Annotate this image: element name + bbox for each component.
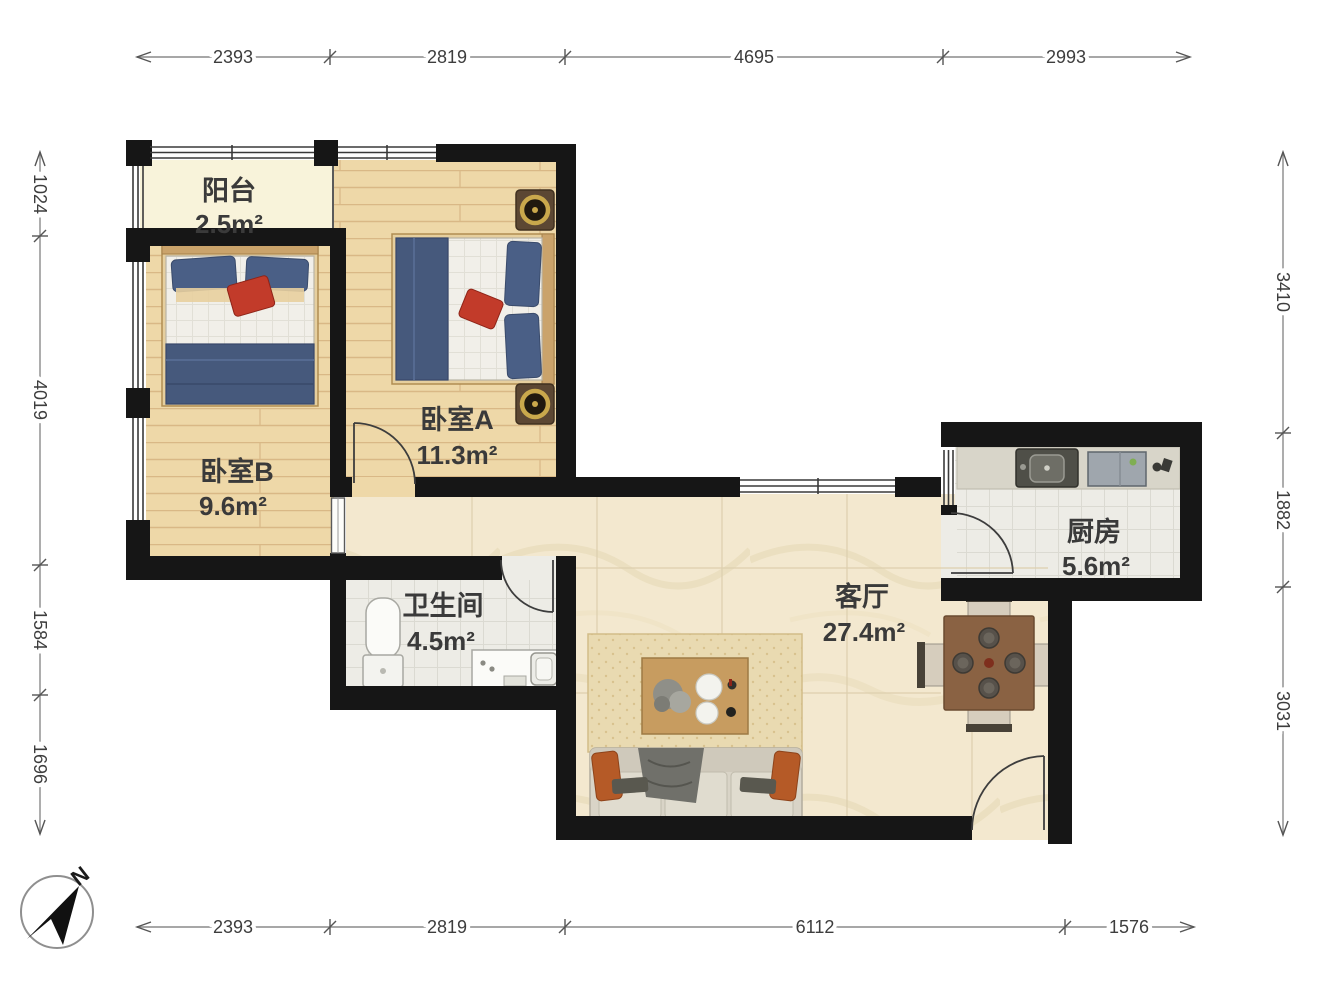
- dim-top-1: 2393: [213, 47, 253, 67]
- living-room-top-window: [740, 478, 895, 494]
- bathroom-label: 卫生间: [403, 591, 484, 621]
- bedroom-b-left-window-upper: [133, 262, 143, 388]
- dim-right-3: 3031: [1273, 691, 1293, 731]
- dim-right-1: 3410: [1273, 272, 1293, 312]
- balcony-label: 阳台: [202, 175, 256, 206]
- coffee-table: [642, 658, 748, 734]
- dim-left-2: 4019: [30, 380, 50, 420]
- dim-left-1: 1024: [30, 174, 50, 214]
- dim-top-4: 2993: [1046, 47, 1086, 67]
- floor-plan-drawing: 2393 2819 4695 2993 2393 2819 6112 1576 …: [0, 0, 1333, 1000]
- plate: [696, 702, 718, 724]
- bedroom-a-bed: [392, 234, 554, 384]
- dining-chair: [917, 642, 945, 688]
- bedroom-a-top-window: [338, 145, 436, 160]
- dim-right-2: 1882: [1273, 490, 1293, 530]
- sofa: [590, 748, 802, 822]
- nightstand-top: [516, 190, 554, 230]
- dim-bottom-4: 1576: [1109, 917, 1149, 937]
- floor-plan: 2393 2819 4695 2993 2393 2819 6112 1576 …: [0, 0, 1333, 1000]
- dim-bottom-3: 6112: [796, 917, 835, 937]
- compass-north-label: N: [66, 861, 94, 890]
- dim-bottom-1: 2393: [213, 917, 253, 937]
- kitchen-stove: [1088, 452, 1146, 486]
- kitchen-area: 5.6m²: [1062, 551, 1130, 581]
- bedroom-b-label: 卧室B: [200, 456, 274, 487]
- dim-top-2: 2819: [427, 47, 467, 67]
- sofa-pillow-right: [769, 751, 801, 802]
- balcony-top-window: [150, 145, 314, 160]
- bedroom-b-left-window-lower: [133, 418, 143, 520]
- bedroom-b-door: [332, 498, 345, 553]
- balcony-area: 2.5m²: [195, 209, 263, 239]
- living-room-label: 客厅: [835, 581, 889, 612]
- nightstand-bottom: [516, 384, 554, 424]
- compass: N: [21, 861, 94, 948]
- dim-left-3: 1584: [30, 610, 50, 650]
- kitchen-label: 厨房: [1067, 517, 1121, 547]
- bedroom-b-area: 9.6m²: [199, 491, 267, 521]
- kitchen-plant: [1130, 459, 1137, 466]
- dim-bottom-2: 2819: [427, 917, 467, 937]
- kitchen-counter: [957, 447, 1180, 489]
- sofa-blanket: [638, 748, 704, 803]
- bathroom-toilet: [363, 598, 403, 687]
- bathroom-area: 4.5m²: [407, 626, 475, 656]
- living-room-area: 27.4m²: [823, 617, 906, 647]
- bedroom-b-bed: [162, 240, 318, 406]
- dim-left-4: 1696: [30, 744, 50, 784]
- bedroom-a-label: 卧室A: [420, 404, 494, 435]
- compass-needle: [27, 886, 79, 945]
- dim-top-3: 4695: [734, 47, 774, 67]
- corridor-floor: [346, 494, 560, 564]
- bedroom-a-area: 11.3m²: [417, 440, 498, 470]
- bathroom-vanity: [472, 650, 560, 688]
- plate: [696, 674, 722, 700]
